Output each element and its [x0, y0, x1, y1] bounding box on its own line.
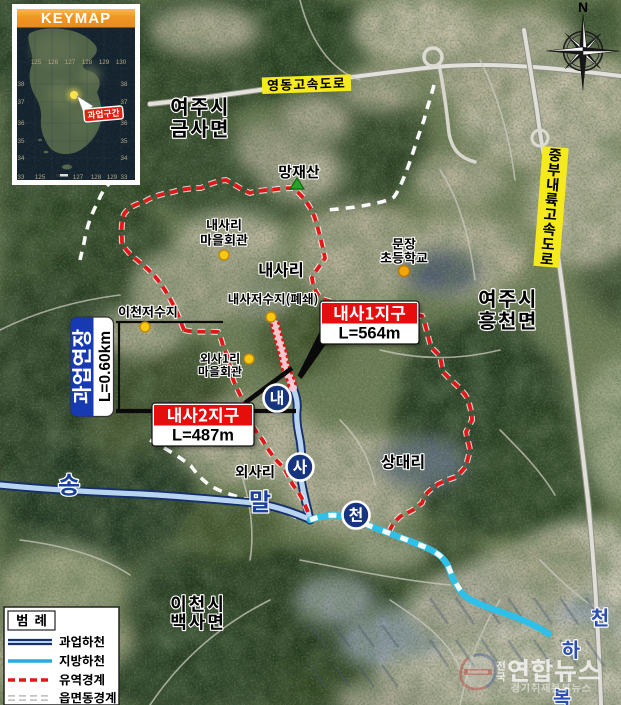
svg-text:127: 127: [65, 59, 76, 66]
svg-text:128: 128: [82, 59, 93, 66]
svg-text:36: 36: [18, 120, 25, 127]
svg-text:33: 33: [18, 174, 25, 181]
svg-text:38: 38: [18, 81, 25, 88]
svg-text:35: 35: [121, 138, 128, 145]
svg-text:38: 38: [121, 81, 128, 88]
svg-text:KEYMAP: KEYMAP: [41, 10, 111, 27]
svg-text:130: 130: [116, 59, 127, 66]
svg-text:L=0.60km: L=0.60km: [97, 331, 114, 402]
svg-text:34: 34: [121, 155, 128, 162]
svg-text:125: 125: [31, 59, 42, 66]
svg-text:37: 37: [18, 99, 25, 106]
svg-text:L=564m: L=564m: [339, 325, 401, 343]
svg-text:128: 128: [91, 174, 102, 181]
svg-text:127: 127: [73, 174, 84, 181]
svg-text:126: 126: [48, 59, 59, 66]
svg-text:37: 37: [121, 99, 128, 106]
svg-text:N: N: [578, 0, 588, 15]
svg-text:34: 34: [18, 155, 25, 162]
svg-text:129: 129: [107, 174, 118, 181]
svg-text:35: 35: [18, 138, 25, 145]
svg-text:36: 36: [121, 120, 128, 127]
svg-text:125: 125: [35, 174, 46, 181]
svg-text:129: 129: [99, 59, 110, 66]
svg-text:L=487m: L=487m: [172, 427, 234, 445]
svg-text:33: 33: [121, 174, 128, 181]
